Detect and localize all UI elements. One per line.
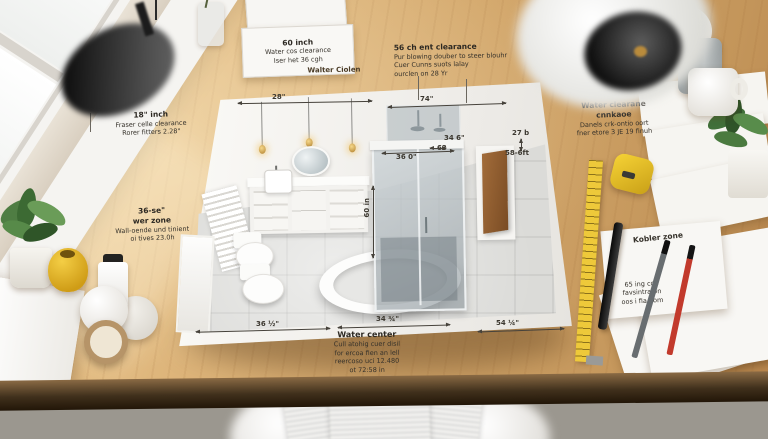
sink-basin: [264, 169, 292, 193]
pendant-bulb: [259, 145, 266, 154]
shower-pipe: [417, 110, 419, 126]
vanity-drawers: [292, 190, 327, 231]
dim-line-inner: [430, 148, 446, 149]
lamp-bulb-glow: [634, 46, 647, 57]
pendant-bulb: [349, 143, 356, 152]
dim-label-top-left: 28": [272, 93, 285, 101]
dim-label-inner: 34 6": [444, 134, 465, 142]
wooden-door: [482, 150, 508, 234]
leader-line: [418, 76, 419, 100]
plant-pot-left: [10, 248, 52, 288]
dim-label-left-height: 60 in: [363, 198, 371, 218]
door-frame: [476, 146, 516, 241]
annotation-keller: 65 ing coe favsintra on oos i fia dom: [607, 278, 676, 307]
annotation-bottom-center: Water center Cull atohig cuer disil for …: [310, 330, 424, 375]
dim-label-bottom-mid: 34 ¾": [376, 315, 399, 323]
top-right-line3: ourclen on 28 Yr: [394, 69, 447, 78]
mug-handle: [730, 78, 748, 100]
keller-line3: oos i fia dom: [621, 296, 663, 306]
desk-scene: 28" 74" 36 0" 34 6" 63 27 b 58-6ft 60 in…: [0, 0, 768, 439]
shower-head: [410, 126, 424, 131]
left-upper-line2: Rorer fitters 2.28": [122, 127, 180, 137]
bottom-center-title: Water center: [310, 330, 424, 341]
glass-shower-enclosure: [372, 146, 467, 312]
dim-label-shower: 36 0": [396, 153, 417, 161]
left-mid-line2: oi tives 23.0h: [130, 233, 174, 243]
lamp-cable: [155, 0, 157, 20]
vanity-shelves: [330, 189, 365, 230]
ruler-metal-tip: [586, 355, 604, 365]
shower-pipe: [439, 114, 441, 127]
top-right-line2: Cuer Cunns suots lalay: [394, 60, 469, 69]
dim-label-bottom-left: 36 ½": [256, 320, 279, 328]
dim-line-left-height: [373, 186, 374, 258]
shower-head: [433, 128, 445, 132]
bottom-center-line4: ot 72:58 in: [349, 366, 384, 374]
leader-line: [466, 79, 467, 103]
exterior-window-frame: [176, 234, 215, 334]
annotation-top-right: 56 ch ent clearance Pur blowing douber t…: [394, 41, 531, 78]
dim-label-right-top: 27 b: [512, 129, 529, 137]
bottom-center-line2: for ercoa fien an lell: [334, 349, 399, 358]
annotation-left-mid: 36-se" wer zone Wall-oende und tinient o…: [103, 204, 200, 244]
dim-label-top-right: 74": [420, 95, 433, 103]
glass-jar: [198, 2, 224, 46]
candle-cup: [84, 320, 128, 364]
card-top-text: 60 inch Water cos clearance Iser het 36 …: [243, 36, 354, 66]
bottom-center-line1: Cull atohig cuer disil: [334, 340, 400, 349]
walter-label: Walter Ciolen: [292, 65, 376, 76]
dim-label-bottom-right: 54 ¼": [496, 319, 519, 327]
dim-label-door: 58-6ft: [505, 149, 529, 157]
vanity-shelves: [254, 190, 289, 231]
bottom-center-line3: reercoso uci 12.480: [335, 357, 399, 366]
vase-opening: [60, 250, 75, 258]
card-top-line2: Iser het 36 cgh: [274, 55, 323, 65]
leaf: [713, 128, 749, 150]
shower-door-handle: [425, 217, 427, 233]
